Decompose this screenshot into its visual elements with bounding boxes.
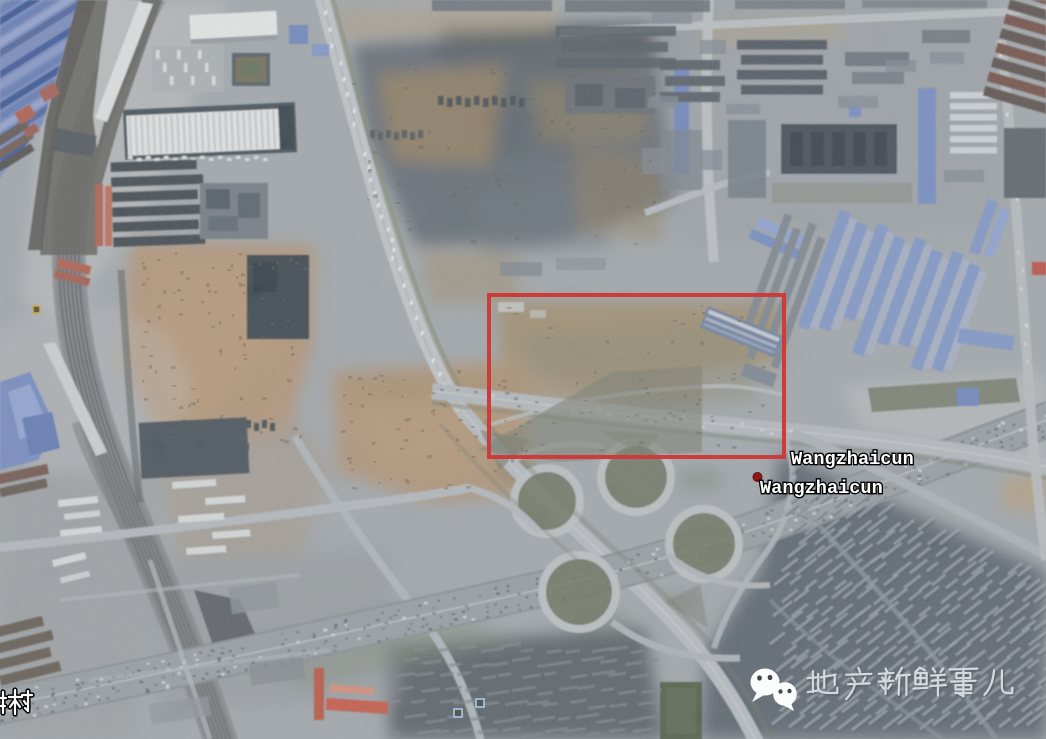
svg-text:Wangzhaicun: Wangzhaicun xyxy=(791,449,914,470)
svg-text:Wangzhaicun: Wangzhaicun xyxy=(760,478,883,499)
